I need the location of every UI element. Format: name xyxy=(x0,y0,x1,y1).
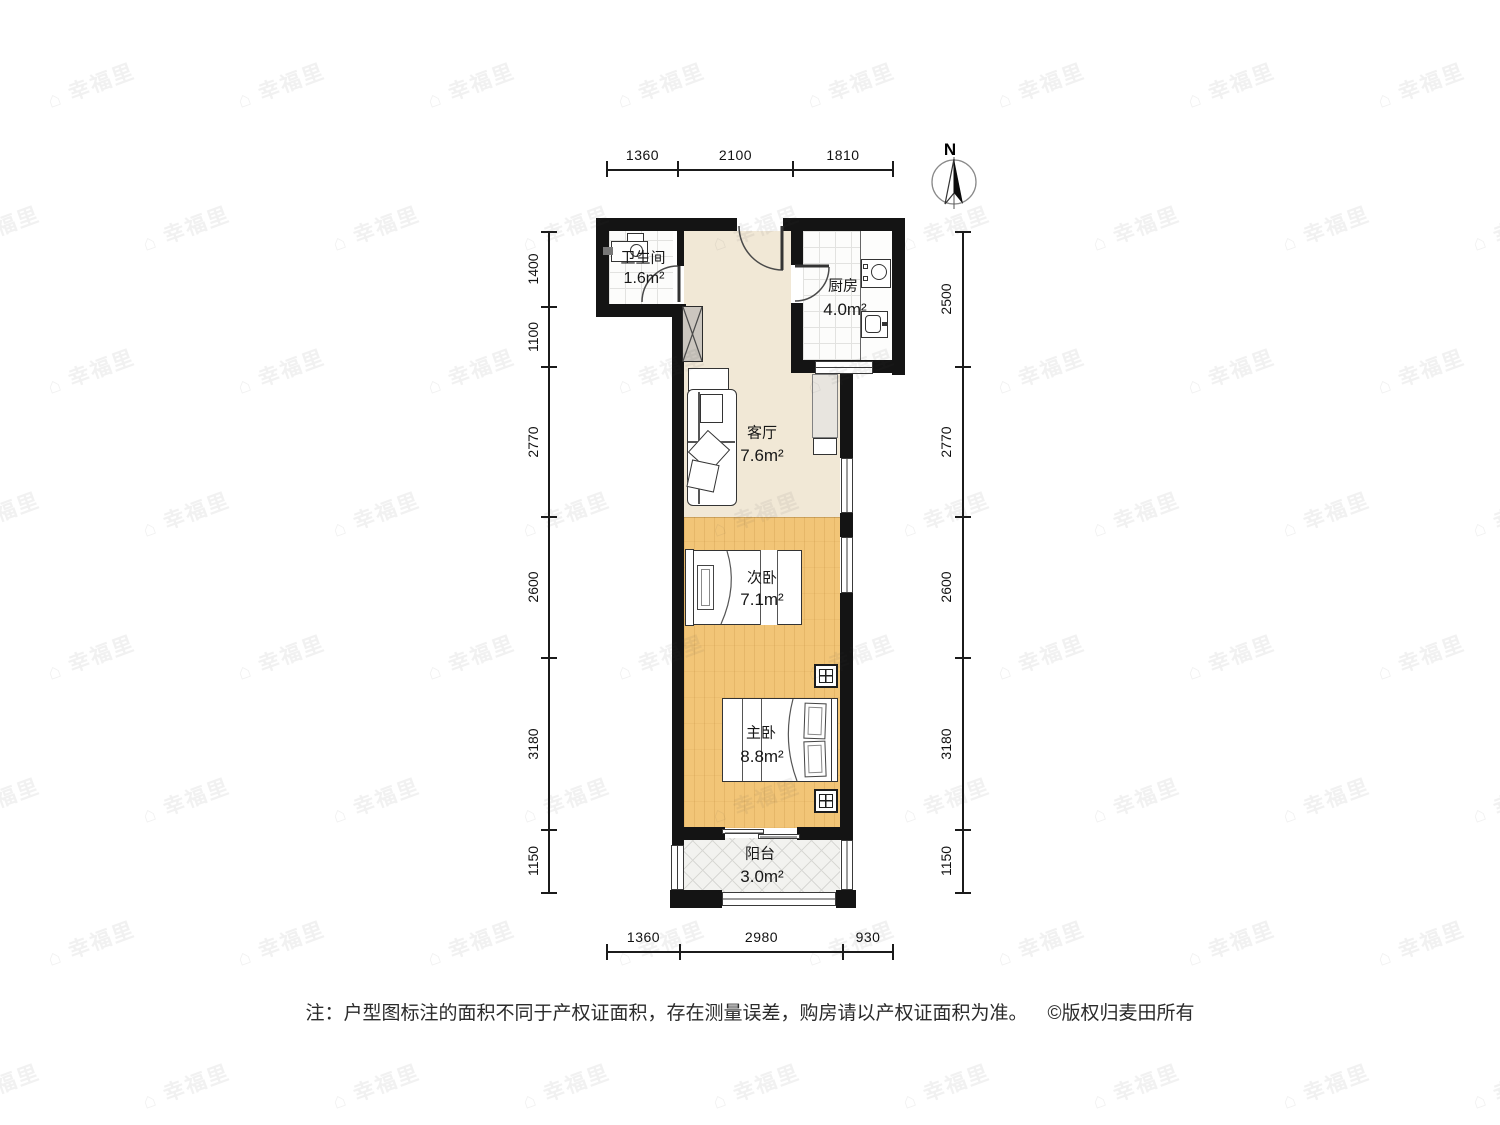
watermark-text: ⌂ 幸福里 xyxy=(518,1056,614,1115)
watermark-text: ⌂ 幸福里 xyxy=(1183,627,1279,686)
window-balcony-right xyxy=(841,840,853,890)
wall-top-right xyxy=(783,218,905,231)
watermark-text: ⌂ 幸福里 xyxy=(233,341,329,400)
dim-tick xyxy=(541,892,557,894)
wall-right-pier xyxy=(840,513,853,537)
double-bed xyxy=(722,698,838,782)
watermark-text: ⌂ 幸福里 xyxy=(1373,55,1469,114)
dim-right-5: 1150 xyxy=(938,846,954,876)
dim-left-2: 1100 xyxy=(525,322,541,352)
label-kitchen-area: 4.0m² xyxy=(823,300,866,320)
label-bedroom1-name: 主卧 xyxy=(746,722,776,743)
dim-tick xyxy=(541,516,557,518)
watermark-text: ⌂ 幸福里 xyxy=(1373,627,1469,686)
double-bed-pillow-1 xyxy=(803,703,826,740)
watermark-text: ⌂ 幸福里 xyxy=(1468,770,1500,829)
watermark-text: ⌂ 幸福里 xyxy=(43,913,139,972)
label-kitchen-name: 厨房 xyxy=(828,275,858,296)
label-living-area: 7.6m² xyxy=(740,446,783,466)
double-bed-headboard xyxy=(831,698,838,782)
dim-tick xyxy=(679,944,681,960)
wall-kitchen-right xyxy=(892,218,905,375)
label-bathroom-name: 卫生间 xyxy=(620,247,665,268)
dim-tick xyxy=(955,892,971,894)
label-bedroom1-area: 8.8m² xyxy=(740,747,783,767)
sofa-side-table xyxy=(688,368,729,391)
cabinet-small-unit xyxy=(813,438,837,455)
watermark-text: ⌂ 幸福里 xyxy=(613,55,709,114)
wall-bedroom-bottom-left xyxy=(672,827,725,840)
dim-right-1: 2500 xyxy=(938,283,954,314)
dim-left-3: 2770 xyxy=(525,426,541,457)
watermark-text: ⌂ 幸福里 xyxy=(328,198,424,257)
single-bed-pillow xyxy=(697,565,714,610)
dim-tick xyxy=(606,161,608,177)
sofa-throw-pillow-2 xyxy=(686,459,719,492)
watermark-text: ⌂ 幸福里 xyxy=(423,627,519,686)
dim-right-4: 3180 xyxy=(938,728,954,759)
floorplan-canvas: ⌂ 幸福里⌂ 幸福里⌂ 幸福里⌂ 幸福里⌂ 幸福里⌂ 幸福里⌂ 幸福里⌂ 幸福里… xyxy=(0,0,1500,1125)
watermark-text: ⌂ 幸福里 xyxy=(898,484,994,543)
watermark-text: ⌂ 幸福里 xyxy=(1468,198,1500,257)
watermark-text: ⌂ 幸福里 xyxy=(0,770,44,829)
compass-north-label: N xyxy=(944,140,956,160)
watermark-text: ⌂ 幸福里 xyxy=(1373,913,1469,972)
cabinet xyxy=(812,374,838,438)
watermark-text: ⌂ 幸福里 xyxy=(518,770,614,829)
watermark-text: ⌂ 幸福里 xyxy=(423,55,519,114)
watermark-text: ⌂ 幸福里 xyxy=(233,913,329,972)
shaft-box xyxy=(682,306,703,362)
watermark-text: ⌂ 幸福里 xyxy=(1183,341,1279,400)
dim-left-5: 3180 xyxy=(525,728,541,759)
watermark-text: ⌂ 幸福里 xyxy=(993,55,1089,114)
dim-tick xyxy=(541,657,557,659)
watermark-text: ⌂ 幸福里 xyxy=(43,55,139,114)
label-bedroom2-name: 次卧 xyxy=(747,567,777,588)
window-bedroom2 xyxy=(841,537,853,593)
watermark-text: ⌂ 幸福里 xyxy=(233,627,329,686)
single-bed xyxy=(685,549,802,626)
watermark-text: ⌂ 幸福里 xyxy=(1183,55,1279,114)
floor-divider-line xyxy=(684,517,840,518)
label-balcony-area: 3.0m² xyxy=(740,867,783,887)
label-bedroom2-area: 7.1m² xyxy=(740,590,783,610)
ac-unit-icon-2 xyxy=(814,789,838,813)
dim-tick xyxy=(892,161,894,177)
footer: 注：户型图标注的面积不同于产权证面积，存在测量误差，购房请以产权证面积为准。©版… xyxy=(0,998,1500,1025)
dim-left-1: 1400 xyxy=(525,253,541,284)
dim-tick xyxy=(541,829,557,831)
wall-right-lower xyxy=(840,593,853,832)
compass-circle xyxy=(932,160,976,204)
wall-balcony-corner-right xyxy=(836,890,856,908)
dim-top-3: 1810 xyxy=(793,147,893,163)
watermark-text: ⌂ 幸福里 xyxy=(1278,1056,1374,1115)
wall-bathroom-right xyxy=(677,231,684,266)
watermark-text: ⌂ 幸福里 xyxy=(138,198,234,257)
watermark-text: ⌂ 幸福里 xyxy=(708,1056,804,1115)
bathroom-tap-icon xyxy=(603,247,613,255)
dim-tick xyxy=(677,161,679,177)
watermark-text: ⌂ 幸福里 xyxy=(1278,770,1374,829)
dim-line-bottom xyxy=(607,951,894,953)
dim-bottom-3: 930 xyxy=(843,929,893,945)
dim-tick xyxy=(842,944,844,960)
watermark-text: ⌂ 幸福里 xyxy=(328,770,424,829)
watermark-text: ⌂ 幸福里 xyxy=(138,770,234,829)
watermark-text: ⌂ 幸福里 xyxy=(423,913,519,972)
wall-top-left xyxy=(596,218,737,231)
dim-top-1: 1360 xyxy=(607,147,678,163)
watermark-text: ⌂ 幸福里 xyxy=(1088,1056,1184,1115)
watermark-text: ⌂ 幸福里 xyxy=(43,341,139,400)
window-balcony-left xyxy=(671,845,684,890)
watermark-text: ⌂ 幸福里 xyxy=(423,341,519,400)
watermark-text: ⌂ 幸福里 xyxy=(0,484,44,543)
watermark-text: ⌂ 幸福里 xyxy=(898,198,994,257)
label-living-name: 客厅 xyxy=(747,422,777,443)
balcony-slider-panel-2 xyxy=(758,834,800,839)
wall-main-left xyxy=(672,304,684,845)
watermark-text: ⌂ 幸福里 xyxy=(993,627,1089,686)
wall-bathroom-left xyxy=(596,218,609,317)
watermark-text: ⌂ 幸福里 xyxy=(993,341,1089,400)
label-balcony-name: 阳台 xyxy=(745,843,775,864)
watermark-text: ⌂ 幸福里 xyxy=(1088,484,1184,543)
watermark-text: ⌂ 幸福里 xyxy=(1373,341,1469,400)
dim-left-6: 1150 xyxy=(525,846,541,876)
stove-knob-1 xyxy=(863,264,868,269)
window-living xyxy=(841,458,853,513)
dim-tick xyxy=(606,944,608,960)
dim-tick xyxy=(792,161,794,177)
watermark-text: ⌂ 幸福里 xyxy=(803,55,899,114)
single-bed-sheet xyxy=(760,550,778,625)
dim-left-4: 2600 xyxy=(525,571,541,602)
watermark-text: ⌂ 幸福里 xyxy=(1088,770,1184,829)
kitchen-sink-tap xyxy=(882,322,887,326)
wall-bedroom-bottom-right xyxy=(797,827,853,840)
kitchen-sink-basin xyxy=(865,315,881,333)
dim-right-3: 2600 xyxy=(938,571,954,602)
dim-line-left xyxy=(548,232,550,893)
sofa xyxy=(686,368,740,508)
stove-icon xyxy=(861,259,891,288)
watermark-text: ⌂ 幸福里 xyxy=(993,913,1089,972)
dim-line-right xyxy=(962,232,964,893)
label-bathroom-area: 1.6m² xyxy=(624,270,665,288)
watermark-text: ⌂ 幸福里 xyxy=(1468,484,1500,543)
sofa-cushion xyxy=(700,394,723,423)
dim-tick xyxy=(955,231,971,233)
dim-right-2: 2770 xyxy=(938,426,954,457)
watermark-text: ⌂ 幸福里 xyxy=(518,484,614,543)
double-bed-pillow-2 xyxy=(803,741,826,778)
watermark-text: ⌂ 幸福里 xyxy=(138,1056,234,1115)
dim-tick xyxy=(955,516,971,518)
watermark-text: ⌂ 幸福里 xyxy=(0,198,44,257)
watermark-text: ⌂ 幸福里 xyxy=(1088,198,1184,257)
dim-tick xyxy=(541,306,557,308)
dim-bottom-1: 1360 xyxy=(607,929,680,945)
dim-tick xyxy=(955,366,971,368)
watermark-text: ⌂ 幸福里 xyxy=(0,1056,44,1115)
watermark-text: ⌂ 幸福里 xyxy=(1278,484,1374,543)
dim-tick xyxy=(955,829,971,831)
wall-right-upper xyxy=(840,360,853,458)
watermark-text: ⌂ 幸福里 xyxy=(233,55,329,114)
window-kitchen-south xyxy=(815,361,873,374)
compass-needle-east xyxy=(954,159,963,204)
dim-line-top xyxy=(607,169,894,171)
compass-needle-west xyxy=(945,159,954,204)
wall-balcony-corner-left xyxy=(670,890,722,908)
dim-bottom-2: 2980 xyxy=(680,929,843,945)
wall-kitchen-left-upper xyxy=(791,231,803,265)
stove-knob-2 xyxy=(863,276,868,281)
watermark-text: ⌂ 幸福里 xyxy=(898,1056,994,1115)
dim-tick xyxy=(541,231,557,233)
ac-unit-icon-1 xyxy=(814,664,838,688)
dim-tick xyxy=(541,366,557,368)
watermark-text: ⌂ 幸福里 xyxy=(1278,198,1374,257)
window-balcony-front xyxy=(722,892,836,906)
watermark-text: ⌂ 幸福里 xyxy=(138,484,234,543)
footer-copyright: ©版权归麦田所有 xyxy=(1048,1003,1195,1024)
dim-top-2: 2100 xyxy=(678,147,793,163)
dim-tick xyxy=(955,657,971,659)
stove-burner xyxy=(871,264,887,280)
footer-note: 注：户型图标注的面积不同于产权证面积，存在测量误差，购房请以产权证面积为准。 xyxy=(305,1003,1027,1024)
watermark-text: ⌂ 幸福里 xyxy=(328,1056,424,1115)
watermark-text: ⌂ 幸福里 xyxy=(1183,913,1279,972)
watermark-text: ⌂ 幸福里 xyxy=(43,627,139,686)
watermark-text: ⌂ 幸福里 xyxy=(1468,1056,1500,1115)
kitchen-counter xyxy=(860,231,892,360)
dim-tick xyxy=(892,944,894,960)
watermark-text: ⌂ 幸福里 xyxy=(328,484,424,543)
watermark-text: ⌂ 幸福里 xyxy=(898,770,994,829)
